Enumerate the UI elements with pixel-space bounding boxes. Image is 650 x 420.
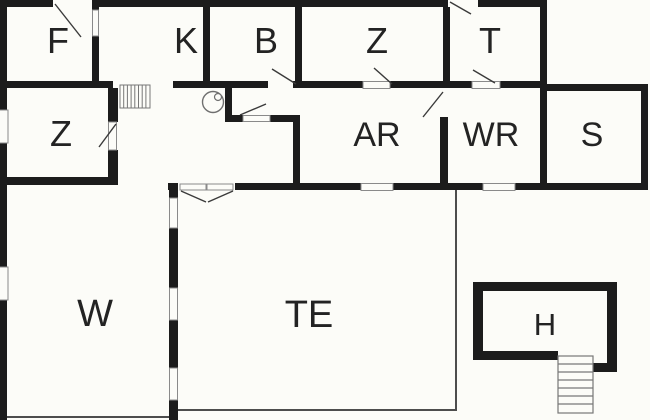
room-label-wr: WR <box>463 116 520 154</box>
room-label-b: B <box>254 20 278 61</box>
w-edge-bottom <box>7 416 169 418</box>
wall-divider-z-t <box>443 0 450 88</box>
window-w-te-1 <box>170 198 178 228</box>
window-ar-south <box>361 184 393 191</box>
wall-s-top <box>547 84 648 91</box>
wall-s-bottom <box>547 183 648 190</box>
door-panel-te-left <box>180 184 206 190</box>
wall-divider-b-z <box>295 0 302 88</box>
staircase-icon <box>120 85 150 108</box>
wall-band-bottom-a <box>235 183 361 190</box>
te-edge-right <box>455 190 457 411</box>
room-label-f: F <box>47 20 69 61</box>
wall-band-bottom-b <box>393 183 483 190</box>
floor-plan-canvas: F K B Z T Z AR WR S W TE H <box>0 0 650 420</box>
door-panel-zleft <box>109 122 117 150</box>
door-panel-t <box>472 82 500 89</box>
round-fixture-icon <box>203 92 224 113</box>
wall-band-under-z2 <box>390 81 472 88</box>
window-w-te-3 <box>170 368 178 400</box>
wall-h-stub <box>593 363 617 372</box>
wall-ar-west <box>293 122 300 190</box>
wall-divider-ar-wr <box>440 117 448 190</box>
wall-band-under-z1 <box>293 81 363 88</box>
wall-hall-stub <box>225 88 232 122</box>
room-label-z-top: Z <box>366 20 388 61</box>
room-label-t: T <box>479 20 501 61</box>
te-edge-bottom <box>178 409 457 411</box>
wall-divider-k-b <box>203 0 210 88</box>
door-panel-te-right <box>207 184 233 190</box>
room-label-w: W <box>77 293 113 335</box>
staircase-treads <box>124 85 146 108</box>
opening-entrance-f <box>53 0 92 7</box>
room-label-z-left: Z <box>50 113 72 154</box>
wall-outer-right <box>540 0 547 190</box>
window-w-west <box>0 267 8 300</box>
wall-divider-f-k <box>92 36 99 81</box>
fixture-inner-circle <box>215 94 222 101</box>
room-label-h: H <box>534 307 556 342</box>
door-panel-ztop <box>363 82 390 89</box>
door-panel-hall <box>243 116 270 122</box>
wall-zleft-bottom <box>0 177 118 185</box>
window-zleft-west <box>0 110 8 143</box>
wall-h-top <box>473 282 617 291</box>
wall-outer-left <box>0 0 7 420</box>
wall-h-right <box>607 282 617 372</box>
wall-h-bottom <box>473 351 558 360</box>
wall-corridor-a <box>232 115 243 122</box>
room-label-ar: AR <box>353 116 400 154</box>
wall-s-right <box>641 84 648 190</box>
wall-corridor-b <box>270 115 300 122</box>
wall-h-left <box>473 282 483 360</box>
window-w-te-2 <box>170 288 178 320</box>
wall-band-under-f <box>0 81 113 88</box>
wall-divider-f-k-stub <box>92 0 99 10</box>
room-label-te: TE <box>285 294 334 336</box>
wall-zleft-east-lower <box>108 150 118 177</box>
room-label-k: K <box>174 20 198 61</box>
staircase-icon <box>558 356 593 413</box>
wall-band-under-t <box>500 81 547 88</box>
wall-band-bottom-c <box>515 183 547 190</box>
wall-zleft-east-upper <box>108 88 118 122</box>
wall-band-under-kb <box>173 81 268 88</box>
room-label-s: S <box>581 116 604 154</box>
window-wr-south <box>483 184 515 191</box>
door-panel-f <box>93 10 99 36</box>
floor-plan: F K B Z T Z AR WR S W TE H <box>0 0 650 420</box>
